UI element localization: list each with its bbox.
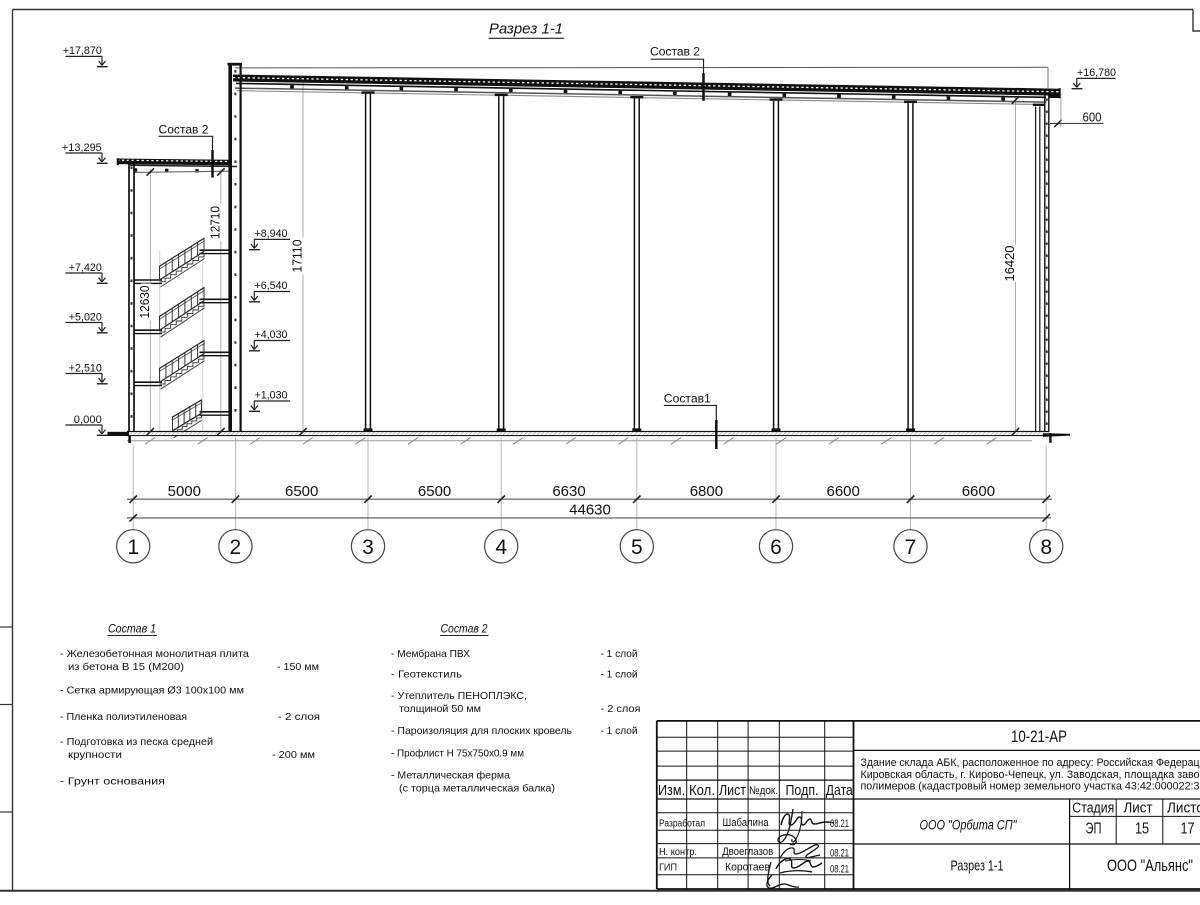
svg-text:- Геотекстиль: - Геотекстиль: [391, 669, 463, 681]
svg-text:- 150 мм: - 150 мм: [277, 661, 319, 673]
svg-text:- Утеплитель ПЕНОПЛЭКС,: - Утеплитель ПЕНОПЛЭКС,: [391, 690, 527, 702]
svg-text:Лист: Лист: [719, 782, 746, 799]
svg-text:Подп.: Подп.: [786, 782, 819, 799]
svg-text:- Мембрана ПВХ: - Мембрана ПВХ: [391, 648, 470, 660]
svg-text:8: 8: [1040, 536, 1052, 559]
svg-text:Разработал: Разработал: [659, 817, 705, 829]
svg-text:Листов: Листов: [1167, 800, 1200, 817]
svg-text:+4,030: +4,030: [255, 329, 288, 341]
svg-text:- Железобетонная монолитная п: - Железобетонная монолитная плита: [60, 648, 249, 660]
svg-text:16420: 16420: [1003, 245, 1017, 281]
svg-text:- Подготовка из песка средней: - Подготовка из песка средней: [60, 736, 213, 748]
svg-text:Здание склада АБК, расположенн: Здание склада АБК, расположенное по адре…: [861, 757, 1200, 769]
svg-text:+5,020: +5,020: [69, 311, 102, 323]
svg-text:+17,870: +17,870: [63, 45, 102, 57]
svg-text:Коротаев: Коротаев: [725, 862, 770, 874]
svg-text:600: 600: [1083, 110, 1102, 124]
svg-text:15: 15: [1135, 821, 1149, 838]
svg-text:+2,510: +2,510: [69, 362, 102, 374]
svg-text:из бетона В 15 (М200): из бетона В 15 (М200): [68, 661, 184, 673]
svg-text:Состав 2: Состав 2: [441, 624, 489, 636]
svg-text:08.21: 08.21: [830, 848, 849, 860]
svg-text:4: 4: [495, 536, 507, 559]
svg-text:Состав1: Состав1: [664, 392, 711, 406]
svg-text:Стадия: Стадия: [1072, 800, 1114, 817]
svg-text:(с торца металлическая балка): (с торца металлическая балка): [399, 782, 555, 794]
svg-text:6500: 6500: [418, 483, 451, 500]
svg-text:12710: 12710: [208, 206, 222, 239]
svg-text:+16,780: +16,780: [1077, 67, 1116, 79]
svg-text:17: 17: [1181, 821, 1195, 838]
svg-text:6: 6: [770, 536, 782, 559]
svg-text:- 2 слоя: - 2 слоя: [601, 703, 641, 715]
svg-text:полимеров (кадастровый номер з: полимеров (кадастровый номер земельного …: [861, 781, 1200, 793]
svg-text:Состав 1: Состав 1: [108, 624, 156, 636]
svg-text:0,000: 0,000: [74, 414, 102, 426]
svg-text:- Сетка армирующая Ø3 100х100: - Сетка армирующая Ø3 100х100 мм: [60, 685, 244, 697]
svg-text:- Металлическая ферма: - Металлическая ферма: [391, 770, 510, 782]
svg-text:ГИП: ГИП: [659, 862, 677, 874]
svg-text:6500: 6500: [285, 483, 318, 500]
svg-text:6600: 6600: [962, 483, 995, 500]
svg-text:17110: 17110: [291, 239, 305, 272]
svg-text:крупности: крупности: [68, 749, 122, 761]
svg-text:08.21: 08.21: [830, 864, 849, 876]
svg-text:толщиной 50 мм: толщиной 50 мм: [399, 703, 481, 715]
svg-text:5: 5: [631, 536, 643, 559]
svg-text:Разрез 1-1: Разрез 1-1: [951, 857, 1004, 874]
svg-text:12630: 12630: [138, 285, 152, 318]
svg-text:Дата: Дата: [826, 782, 854, 799]
svg-text:- 2 слоя: - 2 слоя: [278, 711, 320, 723]
svg-text:- Пленка полиэтиленовая: - Пленка полиэтиленовая: [60, 711, 187, 723]
svg-text:Двоеглазов: Двоеглазов: [722, 846, 773, 858]
svg-text:- 200 мм: - 200 мм: [272, 749, 315, 761]
svg-text:+13,295: +13,295: [62, 142, 102, 154]
svg-text:08.21: 08.21: [830, 818, 849, 830]
svg-text:Состав 2: Состав 2: [650, 45, 700, 59]
svg-text:Кировская область, г. Кирово-Ч: Кировская область, г. Кирово-Чепецк, ул.…: [861, 769, 1200, 781]
svg-text:2: 2: [230, 536, 242, 559]
svg-text:Разрез 1-1: Разрез 1-1: [489, 21, 563, 38]
svg-text:1: 1: [127, 536, 139, 559]
svg-text:44630: 44630: [569, 502, 611, 519]
svg-text:+1,030: +1,030: [255, 389, 288, 401]
svg-text:6800: 6800: [690, 483, 723, 500]
svg-text:Кол.: Кол.: [689, 782, 715, 799]
svg-text:ООО "Орбита СП": ООО "Орбита СП": [920, 818, 1018, 833]
svg-text:- Грунт основания: - Грунт основания: [60, 776, 165, 788]
svg-text:- Профлист Н 75х750х0.9 мм: - Профлист Н 75х750х0.9 мм: [391, 748, 524, 760]
svg-text:- 1 слой: - 1 слой: [601, 648, 638, 660]
svg-text:- Пароизоляция для плоских кро: - Пароизоляция для плоских кровель: [391, 725, 573, 737]
svg-text:3: 3: [362, 536, 374, 559]
svg-text:Состав 2: Состав 2: [159, 122, 209, 136]
svg-text:7: 7: [905, 536, 917, 559]
svg-text:№док.: №док.: [749, 785, 778, 797]
svg-text:ООО "Альянс": ООО "Альянс": [1107, 856, 1193, 875]
svg-text:10-21-АР: 10-21-АР: [1011, 727, 1067, 746]
svg-text:+8,940: +8,940: [255, 228, 288, 240]
svg-text:ЭП: ЭП: [1086, 821, 1102, 838]
svg-text:+6,540: +6,540: [255, 280, 288, 292]
svg-text:Н. контр.: Н. контр.: [659, 846, 697, 858]
svg-text:Изм.: Изм.: [658, 782, 685, 799]
svg-text:Лист: Лист: [1124, 800, 1153, 817]
svg-text:5000: 5000: [168, 483, 201, 500]
svg-text:6600: 6600: [827, 483, 860, 500]
svg-text:+7,420: +7,420: [69, 262, 102, 274]
svg-text:Шабалина: Шабалина: [723, 817, 770, 829]
svg-text:6630: 6630: [552, 483, 585, 500]
svg-text:- 1 слой: - 1 слой: [601, 669, 638, 681]
svg-text:- 1 слой: - 1 слой: [601, 725, 638, 737]
